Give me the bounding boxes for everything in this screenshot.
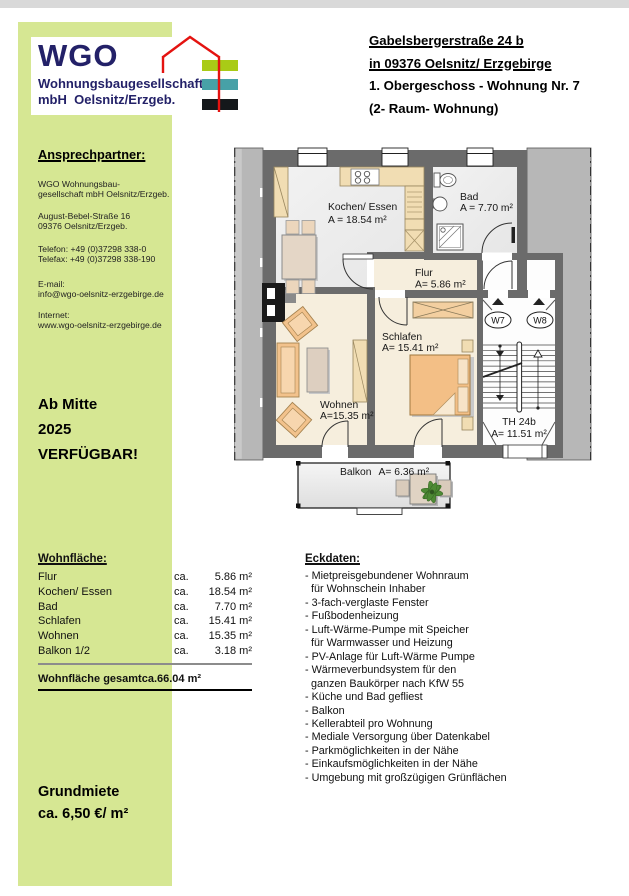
row-label: Wohnen	[38, 629, 174, 644]
table-row: Kochen/ Essenca.18.54 m²	[38, 585, 252, 600]
contact-company: WGO Wohnungsbau-gesellschaft mbH Oelsnit…	[38, 179, 169, 200]
row-label: Schlafen	[38, 614, 174, 629]
row-value: 15.35 m²	[198, 629, 252, 644]
address-line3: 1. Obergeschoss - Wohnung Nr. 7	[369, 75, 580, 98]
label-balcony: BalkonA= 6.36 m²	[340, 467, 430, 478]
label-kitchen-area: A = 18.54 m²	[328, 215, 387, 226]
contact-company-line: gesellschaft mbH Oelsnitz/Erzgeb.	[38, 189, 169, 199]
feature-item: - Kellerabteil pro Wohnung	[305, 718, 507, 731]
label-balcony-name: Balkon	[340, 467, 372, 478]
row-ca: ca.	[174, 570, 198, 585]
feature-item: - Luft-Wärme-Pumpe mit Speicher	[305, 624, 507, 637]
label-balcony-area: A= 6.36 m²	[378, 467, 429, 478]
feature-item: für Wohnschein Inhaber	[305, 583, 507, 596]
area-table-heading: Wohnfläche:	[38, 553, 107, 565]
row-value: 3.18 m²	[198, 644, 252, 659]
stairwell-entrance-opening	[503, 445, 547, 458]
table-divider	[38, 663, 252, 665]
kitchen-door-leaf	[343, 254, 373, 259]
base-rent: Grundmieteca. 6,50 €/ m²	[38, 781, 128, 825]
label-living-area: A=15.35 m²	[320, 411, 374, 422]
row-label: Flur	[38, 570, 174, 585]
table-row: Flurca.5.86 m²	[38, 570, 252, 585]
row-label: Balkon 1/2	[38, 644, 174, 659]
label-hall: Flur	[415, 268, 433, 279]
logo-roof-line	[163, 37, 219, 57]
row-ca: ca.	[174, 600, 198, 615]
address-line1: Gabelsbergerstraße 24 b	[369, 30, 580, 53]
contact-web-line: Internet:	[38, 310, 162, 320]
feature-item: ganzen Baukörper nach KfW 55	[305, 678, 507, 691]
label-kitchen: Kochen/ Essen	[328, 202, 398, 213]
table-total-row: Wohnfläche gesamtca.66.04 m²	[38, 672, 252, 691]
base-rent-line: Grundmiete	[38, 781, 128, 803]
kitchen-sink-cabinet	[405, 186, 424, 219]
top-gray-bar	[0, 0, 629, 8]
address-header: Gabelsbergerstraße 24 b in 09376 Oelsnit…	[369, 30, 580, 120]
feature-item: - Parkmöglichkeiten in der Nähe	[305, 745, 507, 758]
label-stairwell-area: A= 11.51 m²	[491, 429, 547, 440]
shower-icon	[437, 224, 463, 250]
label-bath: Bad	[460, 192, 479, 203]
balcony	[296, 461, 453, 515]
stove-icon	[351, 169, 379, 185]
coffee-table-icon	[307, 348, 328, 392]
feature-item: - 3-fach-verglaste Fenster	[305, 597, 507, 610]
contact-phone-line: Telefax: +49 (0)37298 338-190	[38, 254, 155, 264]
w7-label: W7	[491, 316, 505, 326]
table-row: Badca.7.70 m²	[38, 600, 252, 615]
contact-phone: Telefon: +49 (0)37298 338-0Telefax: +49 …	[38, 244, 155, 265]
row-ca: ca.	[174, 644, 198, 659]
total-label: Wohnfläche gesamt	[38, 672, 142, 687]
contact-phone-line: Telefon: +49 (0)37298 338-0	[38, 244, 155, 254]
table-row: Schlafenca.15.41 m²	[38, 614, 252, 629]
feature-item: - Mediale Versorgung über Datenkabel	[305, 731, 507, 744]
nightstand-icon-2	[462, 417, 473, 430]
base-rent-line: ca. 6,50 €/ m²	[38, 803, 128, 825]
row-ca: ca.	[174, 585, 198, 600]
total-value: 66.04 m²	[157, 672, 201, 687]
table-row: Wohnenca.15.35 m²	[38, 629, 252, 644]
address-line2: in 09376 Oelsnitz/ Erzgebirge	[369, 53, 580, 76]
sink-icon	[433, 197, 447, 211]
contact-address-line: 09376 Oelsnitz/Erzgeb.	[38, 221, 130, 231]
table-row: Balkon 1/2ca.3.18 m²	[38, 644, 252, 659]
availability-line: VERFÜGBAR!	[38, 442, 138, 467]
house-logo-icon	[155, 30, 245, 120]
contact-email-line: E-mail:	[38, 279, 164, 289]
label-hall-area: A= 5.86 m²	[415, 280, 466, 291]
feature-item: - Mietpreisgebundener Wohnraum	[305, 570, 507, 583]
label-bedroom-area: A= 15.41 m²	[382, 343, 439, 354]
window-kitchen-right	[382, 148, 408, 166]
contact-web: Internet:www.wgo-oelsnitz-erzgebirge.de	[38, 310, 162, 331]
feature-item: - Balkon	[305, 705, 507, 718]
row-label: Kochen/ Essen	[38, 585, 174, 600]
feature-item: - Einkaufsmöglichkeiten in der Nähe	[305, 758, 507, 771]
row-value: 18.54 m²	[198, 585, 252, 600]
contact-heading: Ansprechpartner:	[38, 147, 145, 162]
feature-item: für Warmwasser und Heizung	[305, 637, 507, 650]
contact-address-line: August-Bebel-Straße 16	[38, 211, 130, 221]
availability-note: Ab Mitte2025VERFÜGBAR!	[38, 392, 138, 467]
contact-email: E-mail:info@wgo-oelsnitz-erzgebirge.de	[38, 279, 164, 300]
bath-door-stop	[512, 227, 516, 243]
floor-plan: W7 W8 Kochen/ Essen A = 18.54 m² Bad	[234, 138, 629, 538]
feature-item: - Umgebung mit großzügigen Grünflächen	[305, 772, 507, 785]
window-bath	[467, 148, 493, 166]
feature-item: - Küche und Bad gefliest	[305, 691, 507, 704]
neighbor-building-left	[234, 148, 263, 460]
row-value: 15.41 m²	[198, 614, 252, 629]
logo-acronym: WGO	[38, 38, 119, 74]
contact-address: August-Bebel-Straße 1609376 Oelsnitz/Erz…	[38, 211, 130, 232]
window-kitchen-left	[298, 148, 327, 166]
features-heading: Eckdaten:	[305, 553, 360, 565]
feature-item: - PV-Anlage für Luft-Wärme Pumpe	[305, 651, 507, 664]
row-ca: ca.	[174, 629, 198, 644]
label-bedroom: Schlafen	[382, 332, 422, 343]
feature-item: - Fußbodenheizung	[305, 610, 507, 623]
features-list: - Mietpreisgebundener Wohnraum für Wohns…	[305, 570, 507, 785]
feature-item: - Wärmeverbundsystem für den	[305, 664, 507, 677]
label-stairwell: TH 24b	[502, 417, 536, 428]
contact-web-line: www.wgo-oelsnitz-erzgebirge.de	[38, 320, 162, 330]
dining-table	[282, 235, 316, 279]
w8-label: W8	[533, 316, 547, 326]
contact-email-line: info@wgo-oelsnitz-erzgebirge.de	[38, 289, 164, 299]
label-living: Wohnen	[320, 400, 358, 411]
total-ca: ca.	[142, 672, 157, 687]
availability-line: 2025	[38, 417, 138, 442]
area-table: Flurca.5.86 m² Kochen/ Essenca.18.54 m² …	[38, 570, 252, 691]
nightstand-icon	[462, 340, 473, 352]
stair-stringer	[517, 342, 522, 412]
row-label: Bad	[38, 600, 174, 615]
row-value: 7.70 m²	[198, 600, 252, 615]
address-line4: (2- Raum- Wohnung)	[369, 98, 580, 121]
availability-line: Ab Mitte	[38, 392, 138, 417]
label-bath-area: A = 7.70 m²	[460, 203, 514, 214]
contact-company-line: WGO Wohnungsbau-	[38, 179, 169, 189]
row-ca: ca.	[174, 614, 198, 629]
toilet-icon	[434, 173, 456, 187]
row-value: 5.86 m²	[198, 570, 252, 585]
